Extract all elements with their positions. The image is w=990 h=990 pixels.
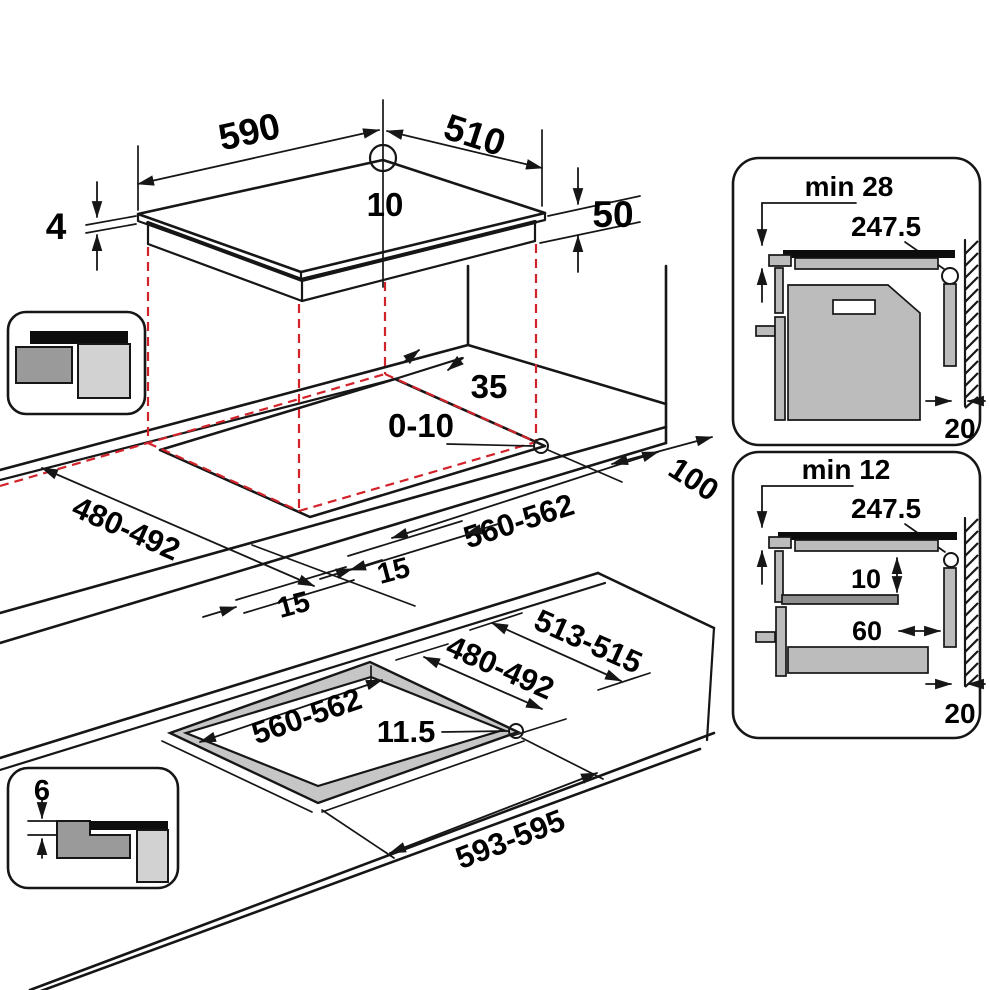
glass-thickness-label: 4 bbox=[46, 206, 67, 247]
fixing-bracket bbox=[769, 255, 791, 266]
hob-body-section bbox=[137, 830, 168, 882]
glass-radius-label: 10 bbox=[367, 186, 404, 223]
flush-install-inset: 6 bbox=[8, 768, 178, 888]
extension-line bbox=[548, 450, 622, 482]
cutout-depth-label: 480-492 bbox=[67, 489, 185, 567]
cabinet-section bbox=[16, 347, 72, 383]
fixing-bracket bbox=[769, 537, 791, 548]
extension-line bbox=[522, 738, 603, 779]
cabinet-tab bbox=[756, 326, 775, 336]
cabinet-side bbox=[775, 317, 785, 420]
height-reference-marker bbox=[944, 553, 958, 567]
worktop-cutout-view: 480-492 560-562 100 35 0-10 15 15 bbox=[0, 244, 725, 643]
extension-line bbox=[86, 216, 136, 233]
installation-diagram: 480-492 560-562 100 35 0-10 15 15 bbox=[0, 0, 990, 990]
hob-glass-section bbox=[778, 532, 957, 540]
worktop-right-edge bbox=[598, 573, 714, 628]
projection-footprint-left bbox=[148, 443, 299, 511]
appliance-height-label: 247.5 bbox=[851, 493, 921, 524]
separator-shelf bbox=[782, 595, 898, 604]
flush-depth-label: 480-492 bbox=[441, 628, 559, 706]
cabinet-side bbox=[776, 607, 786, 676]
extension-line bbox=[356, 534, 470, 569]
body-height-label: 50 bbox=[592, 194, 633, 235]
rear-spacer bbox=[944, 284, 956, 366]
drawer-clearance-section: min 12 247.5 10 60 20 bbox=[733, 452, 985, 738]
extension-line bbox=[512, 719, 566, 736]
cabinet-tab bbox=[756, 632, 775, 642]
height-reference-marker bbox=[942, 268, 958, 284]
appliance-height-label: 247.5 bbox=[851, 211, 921, 242]
wall-gap-label: 20 bbox=[944, 698, 975, 729]
hob-glass-section bbox=[783, 250, 955, 258]
extension-line bbox=[396, 644, 448, 660]
hob-depth-label: 510 bbox=[439, 106, 510, 164]
hob-isometric-view: 590 510 10 4 50 bbox=[46, 100, 640, 301]
drawer-clearance-label: min 12 bbox=[802, 454, 891, 485]
ledge-width-label: 593-595 bbox=[451, 802, 570, 875]
hob-body-section bbox=[78, 344, 130, 398]
hob-body-section bbox=[795, 540, 938, 551]
extension-line bbox=[322, 810, 394, 858]
hob-glass-section bbox=[90, 821, 168, 830]
front-gap-label: 15 bbox=[274, 586, 313, 625]
projection-footprint-front bbox=[299, 442, 536, 511]
radius-leader bbox=[442, 731, 508, 732]
rear-gap-label: 35 bbox=[471, 368, 508, 405]
side-clearance-label: 100 bbox=[662, 450, 724, 508]
cabinet-side bbox=[775, 268, 783, 313]
hob-width-label: 590 bbox=[215, 105, 284, 158]
rebate-depth-label: 6 bbox=[34, 775, 50, 807]
oven-vent bbox=[833, 300, 875, 314]
rear-spacer bbox=[944, 568, 956, 647]
extension-line bbox=[348, 521, 462, 556]
front-gap-arrow bbox=[203, 607, 236, 617]
oven-clearance-label: min 28 bbox=[805, 171, 894, 202]
hob-glass-section bbox=[30, 331, 128, 344]
worktop-right-corner bbox=[707, 628, 714, 740]
wall-gap-label: 20 bbox=[944, 413, 975, 444]
standard-install-inset bbox=[8, 312, 145, 414]
shelf-gap-label: 10 bbox=[851, 564, 881, 594]
hob-body-section bbox=[795, 258, 938, 269]
overlap-label: 15 bbox=[374, 552, 413, 591]
flush-radius-label: 11.5 bbox=[377, 714, 436, 749]
vent-width-label: 60 bbox=[852, 616, 882, 646]
oven-clearance-section: min 28 247.5 20 bbox=[733, 158, 985, 445]
drawer-body bbox=[788, 647, 928, 673]
diagram-canvas: 480-492 560-562 100 35 0-10 15 15 bbox=[0, 0, 990, 990]
radius-leader bbox=[447, 444, 533, 446]
cutout-radius-label: 0-10 bbox=[388, 407, 454, 444]
